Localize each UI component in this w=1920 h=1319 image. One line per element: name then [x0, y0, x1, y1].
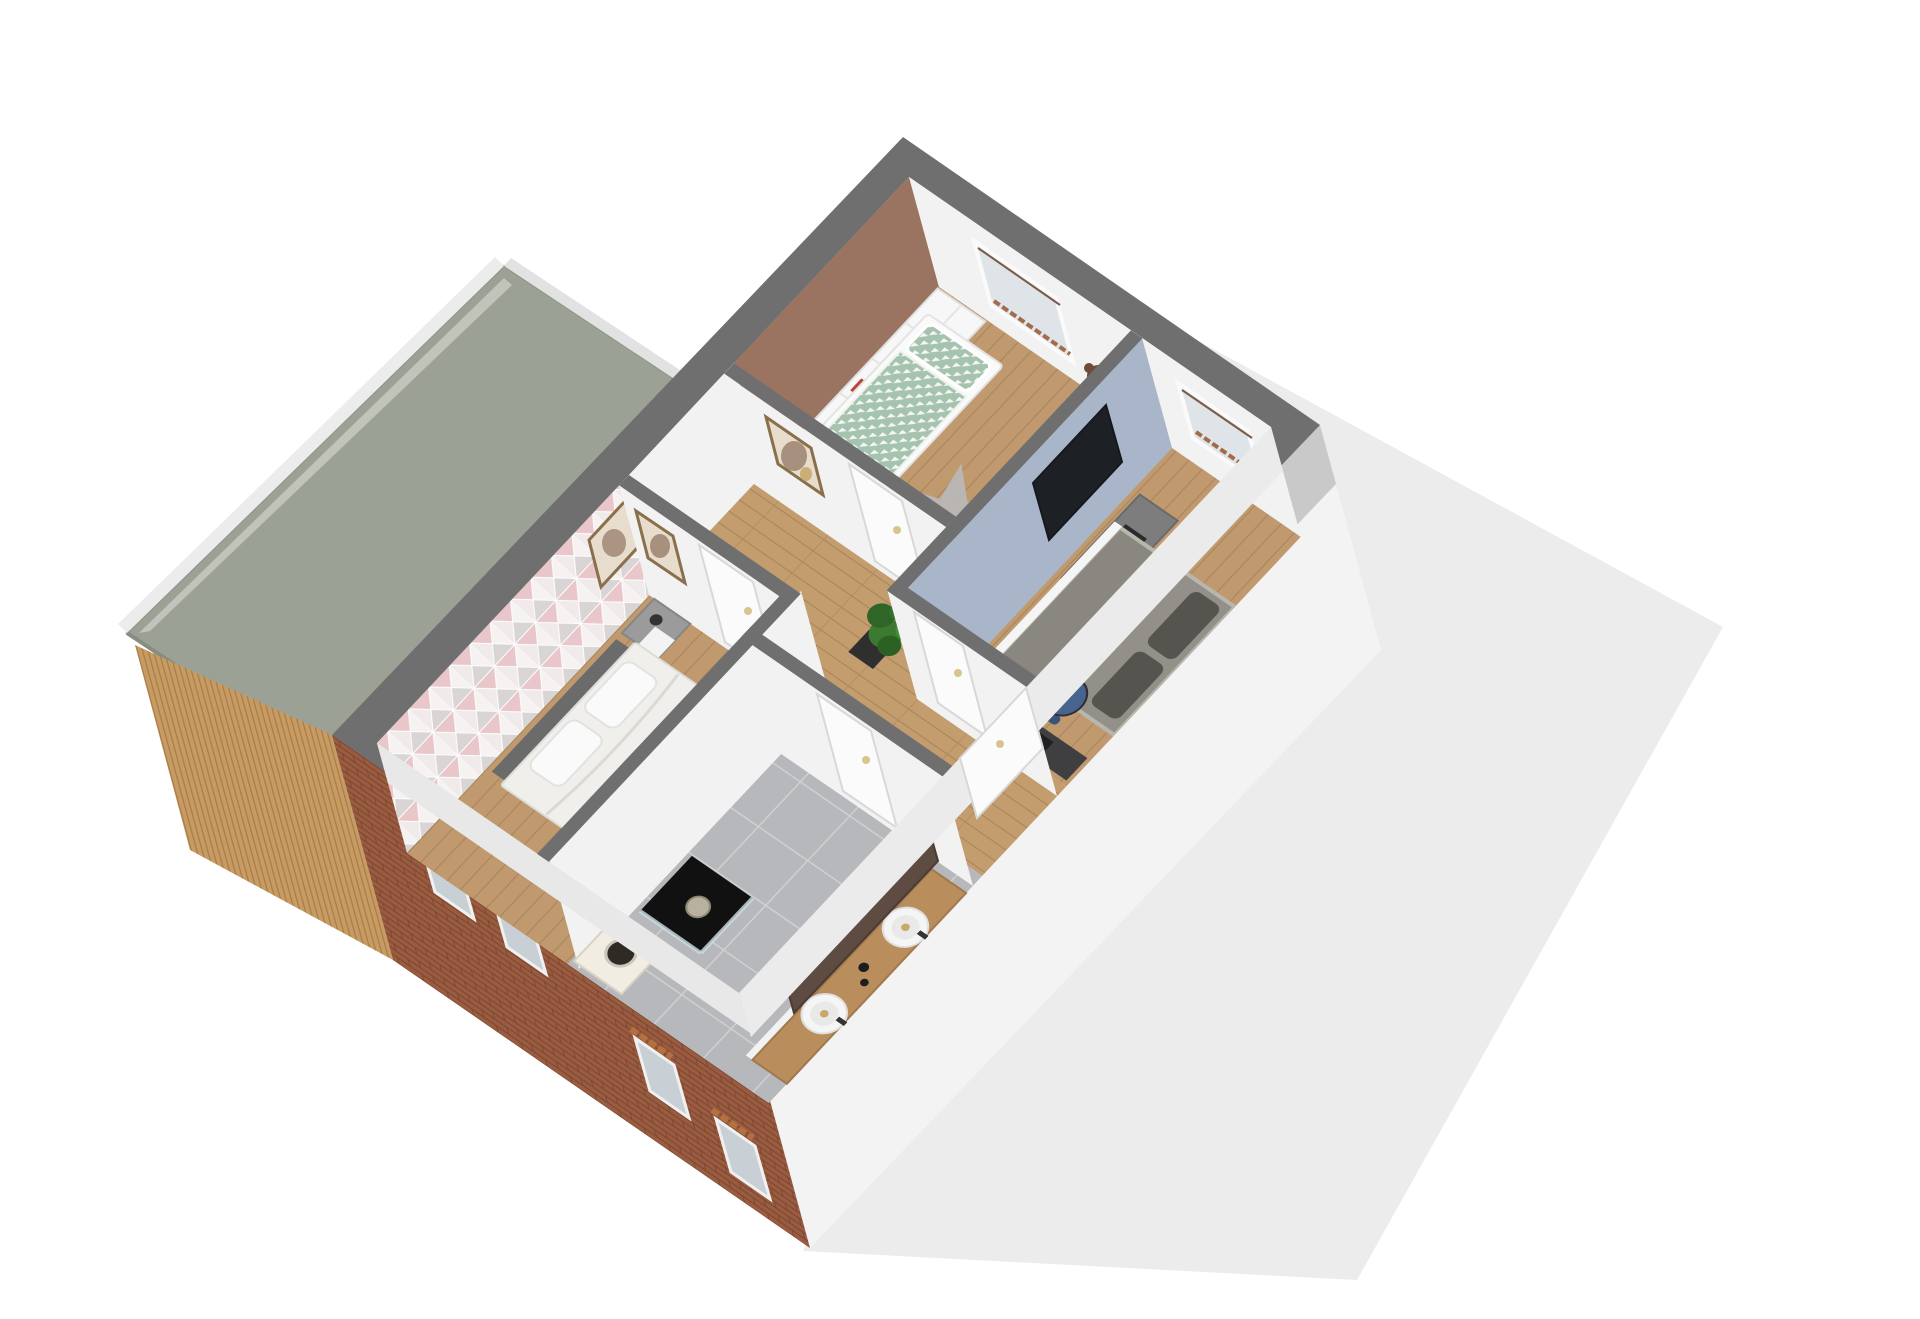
floorplan-render — [0, 0, 1920, 1319]
floorplan-svg — [0, 0, 1920, 1319]
